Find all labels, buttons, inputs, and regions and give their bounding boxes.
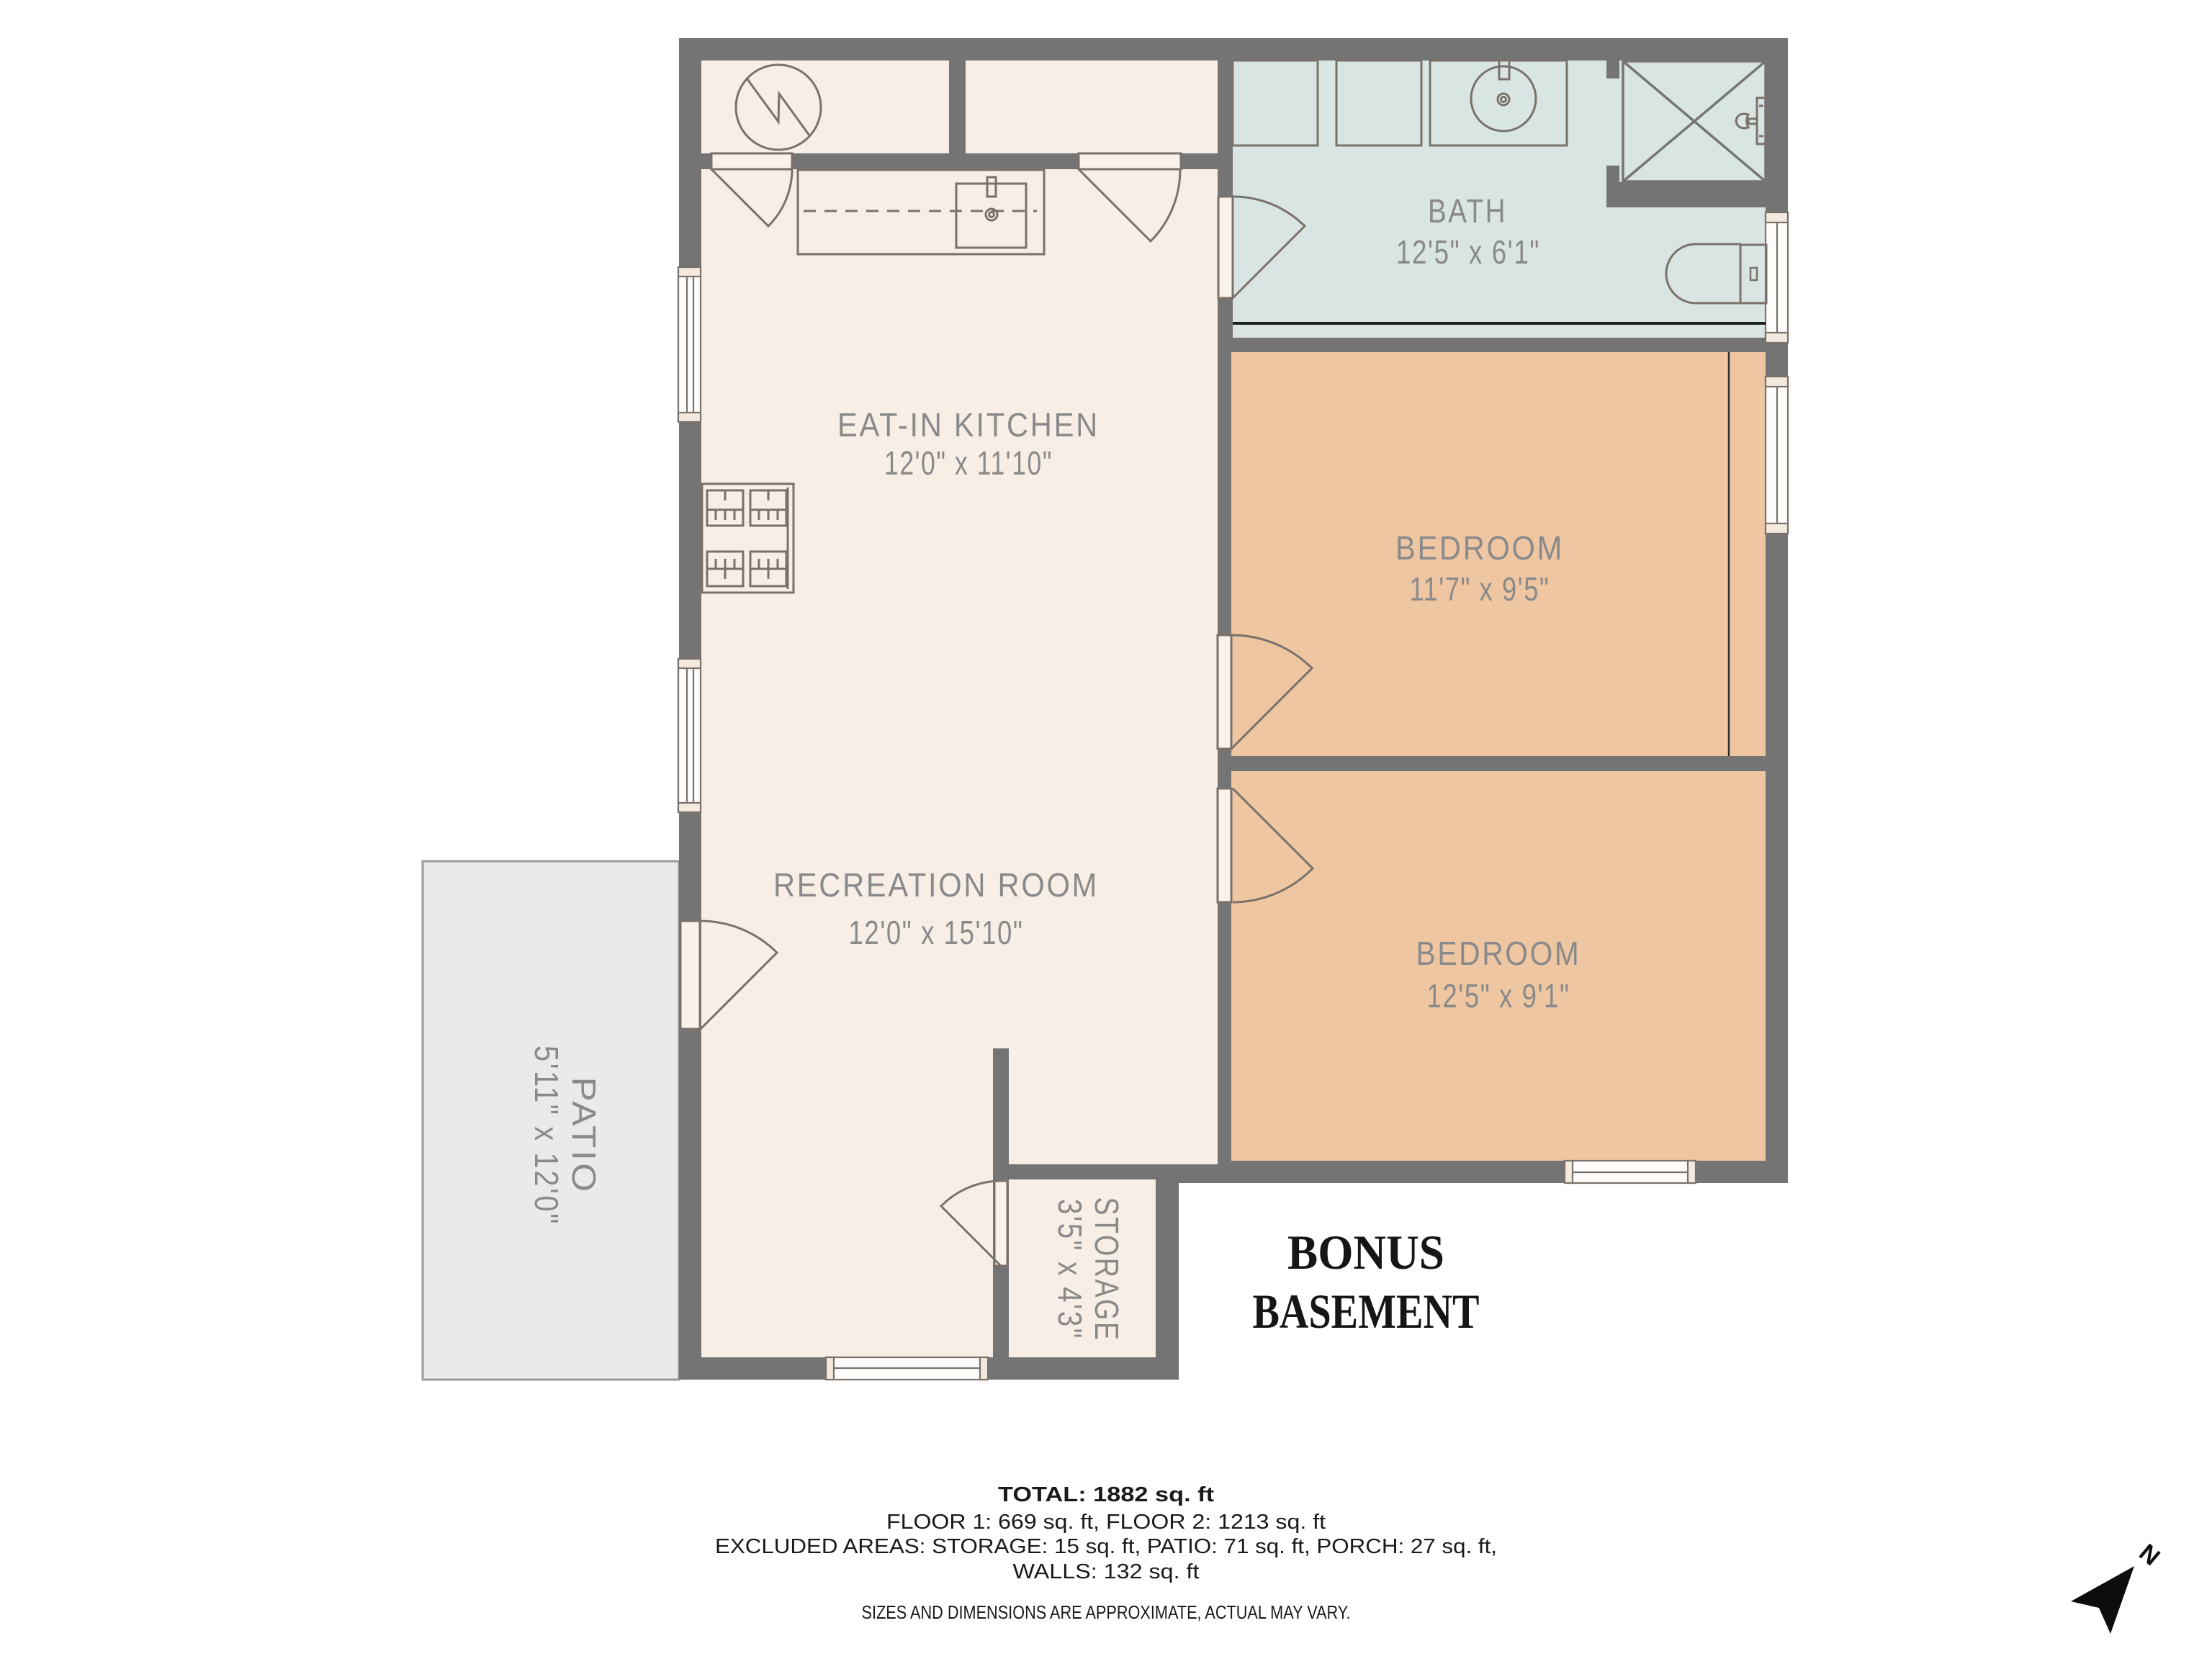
- svg-text:5'11" x 12'0": 5'11" x 12'0": [528, 1046, 565, 1226]
- svg-text:BEDROOM: BEDROOM: [1416, 935, 1581, 972]
- svg-text:EAT-IN KITCHEN: EAT-IN KITCHEN: [837, 406, 1100, 444]
- svg-text:TOTAL: 1882 sq. ft: TOTAL: 1882 sq. ft: [998, 1483, 1214, 1506]
- svg-text:BASEMENT: BASEMENT: [1253, 1284, 1480, 1339]
- svg-text:STORAGE: STORAGE: [1088, 1197, 1125, 1342]
- svg-text:12'0" x 15'10": 12'0" x 15'10": [849, 914, 1024, 951]
- svg-text:BATH: BATH: [1428, 192, 1507, 230]
- svg-text:PATIO: PATIO: [565, 1077, 603, 1195]
- svg-text:12'0" x 11'10": 12'0" x 11'10": [884, 444, 1053, 482]
- svg-text:SIZES AND DIMENSIONS ARE APPRO: SIZES AND DIMENSIONS ARE APPROXIMATE, AC…: [862, 1601, 1351, 1623]
- svg-text:EXCLUDED AREAS: STORAGE: 15 sq: EXCLUDED AREAS: STORAGE: 15 sq. ft, PATI…: [715, 1535, 1497, 1558]
- svg-text:12'5" x 6'1": 12'5" x 6'1": [1396, 233, 1540, 271]
- svg-text:3'5" x 4'3": 3'5" x 4'3": [1051, 1199, 1089, 1340]
- svg-text:WALLS: 132 sq. ft: WALLS: 132 sq. ft: [1013, 1560, 1200, 1583]
- svg-text:11'7" x 9'5": 11'7" x 9'5": [1410, 570, 1550, 608]
- svg-text:BEDROOM: BEDROOM: [1395, 529, 1564, 567]
- svg-text:BONUS: BONUS: [1287, 1225, 1444, 1280]
- svg-text:RECREATION ROOM: RECREATION ROOM: [773, 866, 1099, 904]
- svg-text:12'5" x 9'1": 12'5" x 9'1": [1427, 977, 1570, 1015]
- svg-text:FLOOR 1: 669 sq. ft, FLOOR 2:: FLOOR 1: 669 sq. ft, FLOOR 2: 1213 sq. f…: [886, 1511, 1326, 1534]
